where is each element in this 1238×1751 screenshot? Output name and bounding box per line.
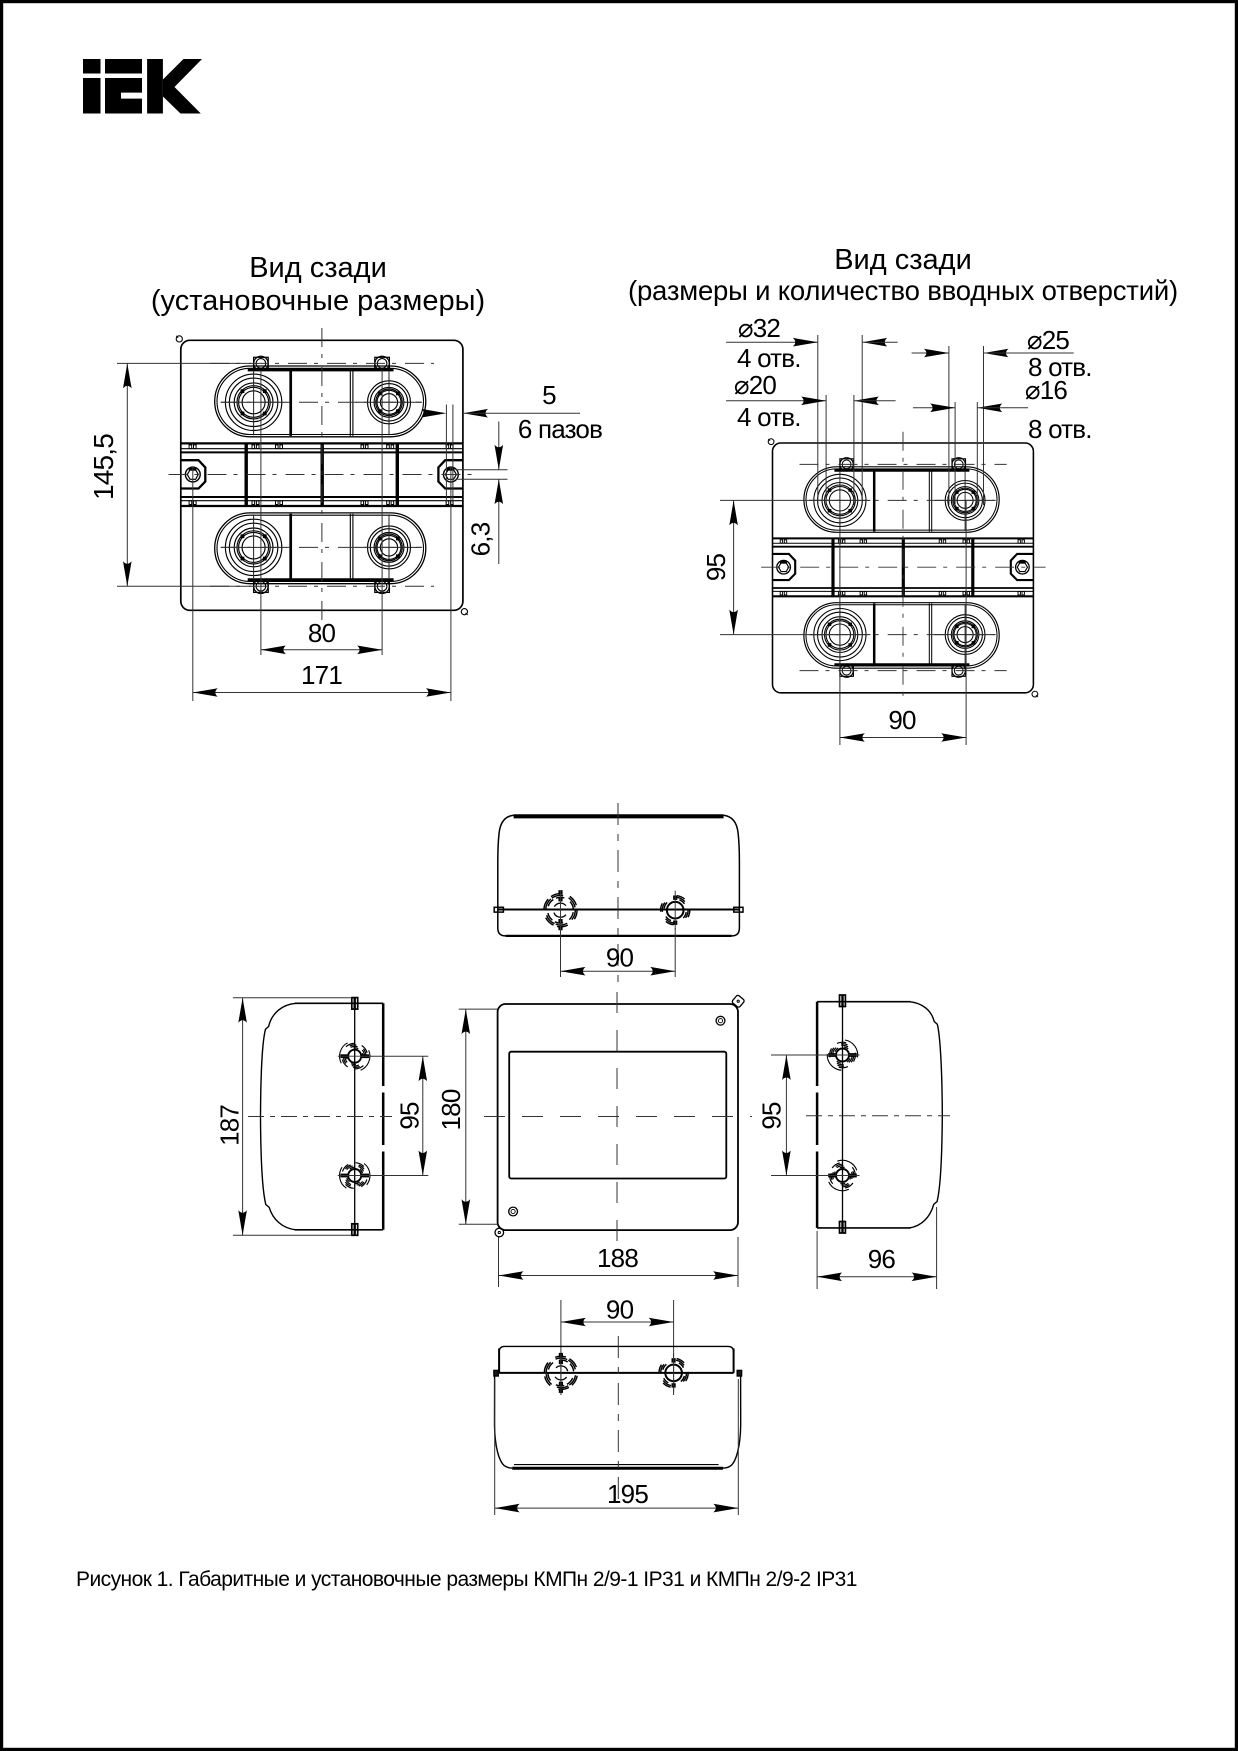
svg-text:⌀20: ⌀20 (734, 370, 777, 400)
svg-text:188: 188 (597, 1243, 638, 1273)
svg-text:180: 180 (436, 1089, 466, 1130)
svg-text:⌀32: ⌀32 (738, 313, 781, 343)
svg-text:⌀16: ⌀16 (1025, 375, 1068, 405)
svg-text:4 отв.: 4 отв. (737, 402, 801, 432)
svg-text:95: 95 (395, 1102, 425, 1130)
svg-text:96: 96 (868, 1244, 896, 1274)
svg-text:6,3: 6,3 (466, 522, 496, 556)
svg-text:95: 95 (757, 1102, 787, 1130)
svg-text:90: 90 (606, 1295, 634, 1325)
svg-text:Рисунок 1. Габаритные и устано: Рисунок 1. Габаритные и установочные раз… (76, 1568, 857, 1591)
svg-text:95: 95 (701, 554, 731, 582)
svg-text:171: 171 (301, 660, 342, 690)
svg-text:(установочные размеры): (установочные размеры) (151, 285, 485, 317)
svg-text:187: 187 (215, 1105, 245, 1146)
svg-text:5: 5 (542, 380, 556, 410)
svg-text:(размеры и количество вводных: (размеры и количество вводных отверстий) (628, 275, 1178, 306)
svg-text:Вид сзади: Вид сзади (834, 244, 972, 276)
svg-text:Вид сзади: Вид сзади (249, 252, 387, 284)
svg-text:8 отв.: 8 отв. (1028, 414, 1092, 444)
svg-text:80: 80 (308, 618, 336, 648)
svg-text:6 пазов: 6 пазов (518, 414, 602, 444)
svg-text:4 отв.: 4 отв. (737, 343, 801, 373)
svg-text:195: 195 (607, 1479, 648, 1509)
svg-text:90: 90 (888, 705, 916, 735)
svg-text:⌀25: ⌀25 (1027, 325, 1070, 355)
svg-text:145,5: 145,5 (88, 434, 119, 500)
svg-text:90: 90 (606, 943, 634, 973)
